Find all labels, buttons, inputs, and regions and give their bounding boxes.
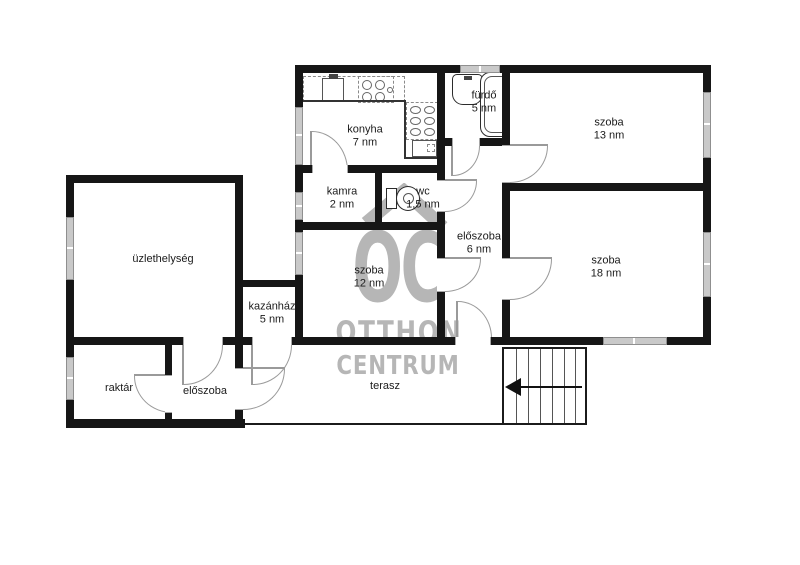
door-opening	[235, 368, 243, 410]
door-opening	[502, 145, 510, 183]
window	[295, 107, 303, 165]
window	[295, 192, 303, 220]
floor-plan: OC OTTHON CENTRUM	[0, 0, 800, 565]
watermark-line2: CENTRUM	[336, 351, 459, 381]
room-label-wc: wc 1,5 nm	[406, 186, 440, 211]
window	[703, 232, 711, 297]
window	[703, 92, 711, 158]
door-opening	[165, 375, 172, 413]
counter-edge	[303, 100, 406, 102]
wall	[66, 175, 243, 183]
door-swing	[445, 181, 477, 212]
kitchen-sink-faucet	[329, 74, 338, 79]
door-opening	[312, 165, 348, 173]
door-swing	[445, 259, 481, 292]
stair-direction-arrowhead	[505, 378, 521, 396]
room-label-furdo: fürdő 5 nm	[471, 90, 496, 115]
hob-burner	[424, 106, 435, 114]
wall	[375, 173, 382, 222]
stair-direction-arrow	[512, 386, 582, 388]
door-swing	[510, 146, 548, 183]
room-label-szoba-12: szoba 12 nm	[354, 265, 385, 290]
window	[66, 357, 74, 400]
wall	[66, 419, 245, 428]
room-label-eloszoba-kis: előszoba	[183, 385, 227, 398]
room-label-konyha: konyha 7 nm	[347, 124, 382, 149]
room-label-uzlethelyseg: üzlethelység	[132, 253, 193, 266]
kitchen-sink	[322, 78, 344, 101]
door-opening	[502, 258, 510, 300]
door-opening	[455, 337, 491, 345]
room-label-szoba-18: szoba 18 nm	[591, 255, 622, 280]
staircase	[502, 347, 587, 425]
room-label-terasz: terasz	[370, 380, 400, 393]
door-opening	[452, 138, 480, 146]
terrace-edge	[243, 423, 503, 425]
window	[295, 232, 303, 275]
room-label-kazanhaz: kazánház 5 nm	[248, 301, 295, 326]
kitchen-sink-2-detail	[427, 144, 435, 152]
hob-burner	[410, 106, 421, 114]
door-opening	[252, 337, 292, 345]
room-label-kamra: kamra 2 nm	[327, 186, 358, 211]
wall	[295, 222, 445, 230]
counter-edge	[404, 157, 439, 159]
room-label-szoba-13: szoba 13 nm	[594, 117, 625, 142]
door-opening	[183, 337, 223, 345]
stove-burner	[362, 80, 372, 90]
wall	[235, 280, 303, 287]
hob-burner	[424, 117, 435, 125]
door-swing	[510, 259, 552, 300]
bathroom-sink-faucet	[464, 76, 472, 80]
hob-burner	[410, 117, 421, 125]
window	[66, 217, 74, 280]
door-opening	[437, 258, 445, 292]
door-swing	[253, 345, 292, 385]
hob-burner	[410, 128, 421, 136]
stove-burner	[375, 80, 385, 90]
door-swing	[184, 345, 223, 385]
hob-burner	[424, 128, 435, 136]
door-swing	[453, 146, 480, 176]
room-label-raktar: raktár	[105, 382, 133, 395]
stove-burner	[387, 87, 393, 93]
door-swing	[458, 301, 492, 338]
window	[460, 65, 500, 73]
wall	[502, 183, 711, 191]
room-label-eloszoba: előszoba 6 nm	[457, 231, 501, 256]
window	[603, 337, 667, 345]
